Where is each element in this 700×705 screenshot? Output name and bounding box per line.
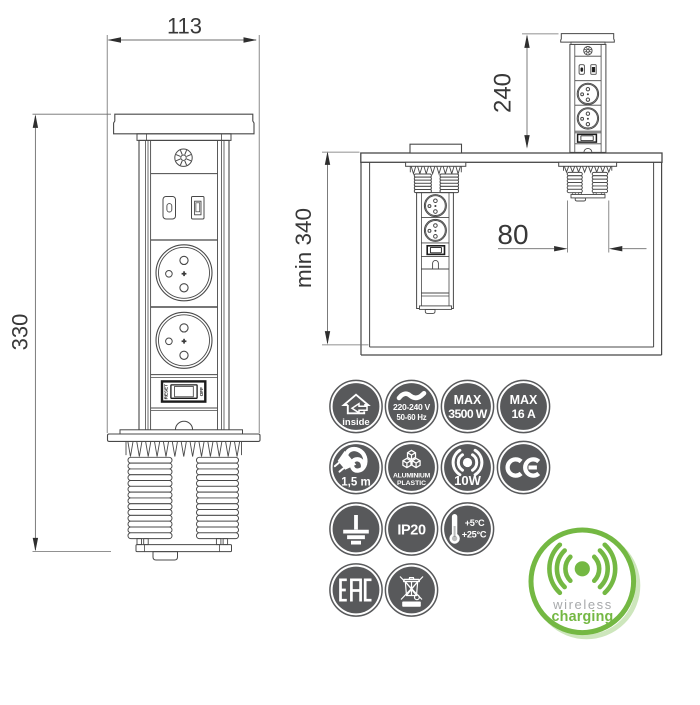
svg-text:OFF: OFF bbox=[199, 387, 204, 396]
svg-text:inside: inside bbox=[342, 417, 369, 428]
svg-text:IP20: IP20 bbox=[397, 523, 426, 539]
svg-text:MAX: MAX bbox=[510, 393, 538, 407]
svg-text:MAX: MAX bbox=[454, 393, 482, 407]
svg-text:220-240 V: 220-240 V bbox=[393, 402, 431, 412]
svg-text:50-60 Hz: 50-60 Hz bbox=[396, 413, 426, 422]
svg-text:ALUMINIUM: ALUMINIUM bbox=[393, 473, 431, 480]
svg-text:RESET: RESET bbox=[163, 384, 168, 400]
svg-text:1,5 m: 1,5 m bbox=[341, 477, 370, 489]
svg-text:+5°C: +5°C bbox=[465, 518, 485, 528]
svg-text:charging: charging bbox=[552, 609, 614, 625]
svg-text:+25°C: +25°C bbox=[462, 530, 487, 540]
svg-text:80: 80 bbox=[497, 219, 528, 250]
svg-text:330: 330 bbox=[8, 314, 33, 351]
svg-text:240: 240 bbox=[490, 73, 517, 113]
svg-text:10W: 10W bbox=[454, 473, 481, 488]
svg-text:min 340: min 340 bbox=[291, 208, 316, 288]
svg-text:3500 W: 3500 W bbox=[448, 407, 487, 421]
svg-text:113: 113 bbox=[167, 14, 202, 39]
svg-text:PLASTIC: PLASTIC bbox=[397, 480, 426, 487]
svg-text:16 A: 16 A bbox=[511, 407, 536, 421]
